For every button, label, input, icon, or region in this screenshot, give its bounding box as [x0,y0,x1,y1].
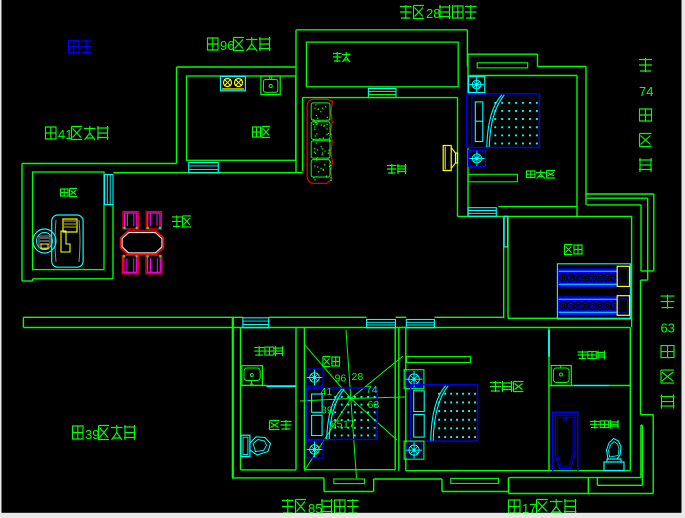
svg-text:41: 41 [58,127,72,142]
svg-text:28: 28 [352,371,364,383]
svg-text:41: 41 [321,386,333,398]
svg-text:39: 39 [85,427,99,442]
svg-text:96: 96 [220,38,234,53]
svg-text:28: 28 [426,6,440,21]
svg-text:39: 39 [321,404,333,416]
svg-text:74: 74 [366,384,378,396]
svg-text:85: 85 [331,418,343,430]
svg-text:74: 74 [639,84,653,99]
svg-text:63: 63 [368,399,380,411]
svg-text:96: 96 [335,373,347,385]
svg-text:17: 17 [343,418,355,430]
svg-text:63: 63 [661,321,675,336]
